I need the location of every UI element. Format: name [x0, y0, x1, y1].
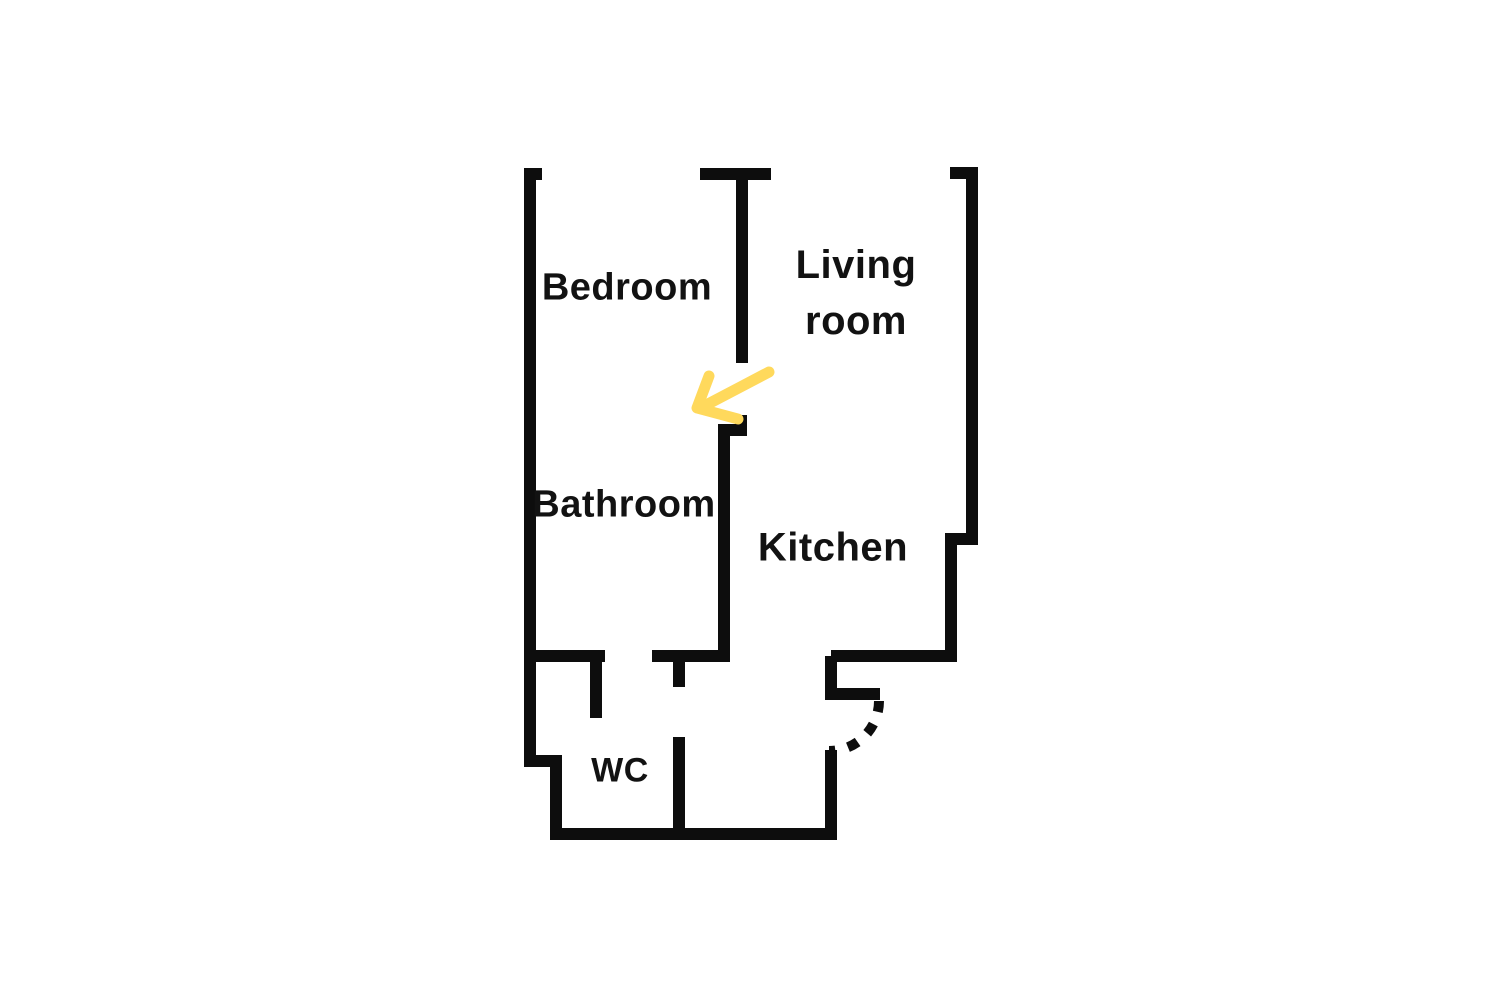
- arrow-shaft: [708, 372, 769, 404]
- room-label-living-room: Living room: [796, 237, 917, 349]
- room-label-bedroom: Bedroom: [542, 267, 712, 310]
- room-label-bathroom: Bathroom: [532, 484, 715, 527]
- floorplan-drawing: [0, 0, 1500, 1000]
- room-label-living-room-line2: room: [796, 293, 917, 349]
- room-label-living-room-line1: Living: [796, 237, 917, 293]
- wall-bathroom-kitchen: [724, 415, 741, 656]
- door-swing-arc: [829, 701, 879, 751]
- highlight-arrow-icon: [697, 372, 769, 419]
- wall-bathroom-south: [524, 656, 605, 718]
- room-label-kitchen: Kitchen: [758, 526, 908, 571]
- room-label-wc: WC: [591, 752, 649, 791]
- floorplan-canvas: Bedroom Living room Bathroom Kitchen WC: [0, 0, 1500, 1000]
